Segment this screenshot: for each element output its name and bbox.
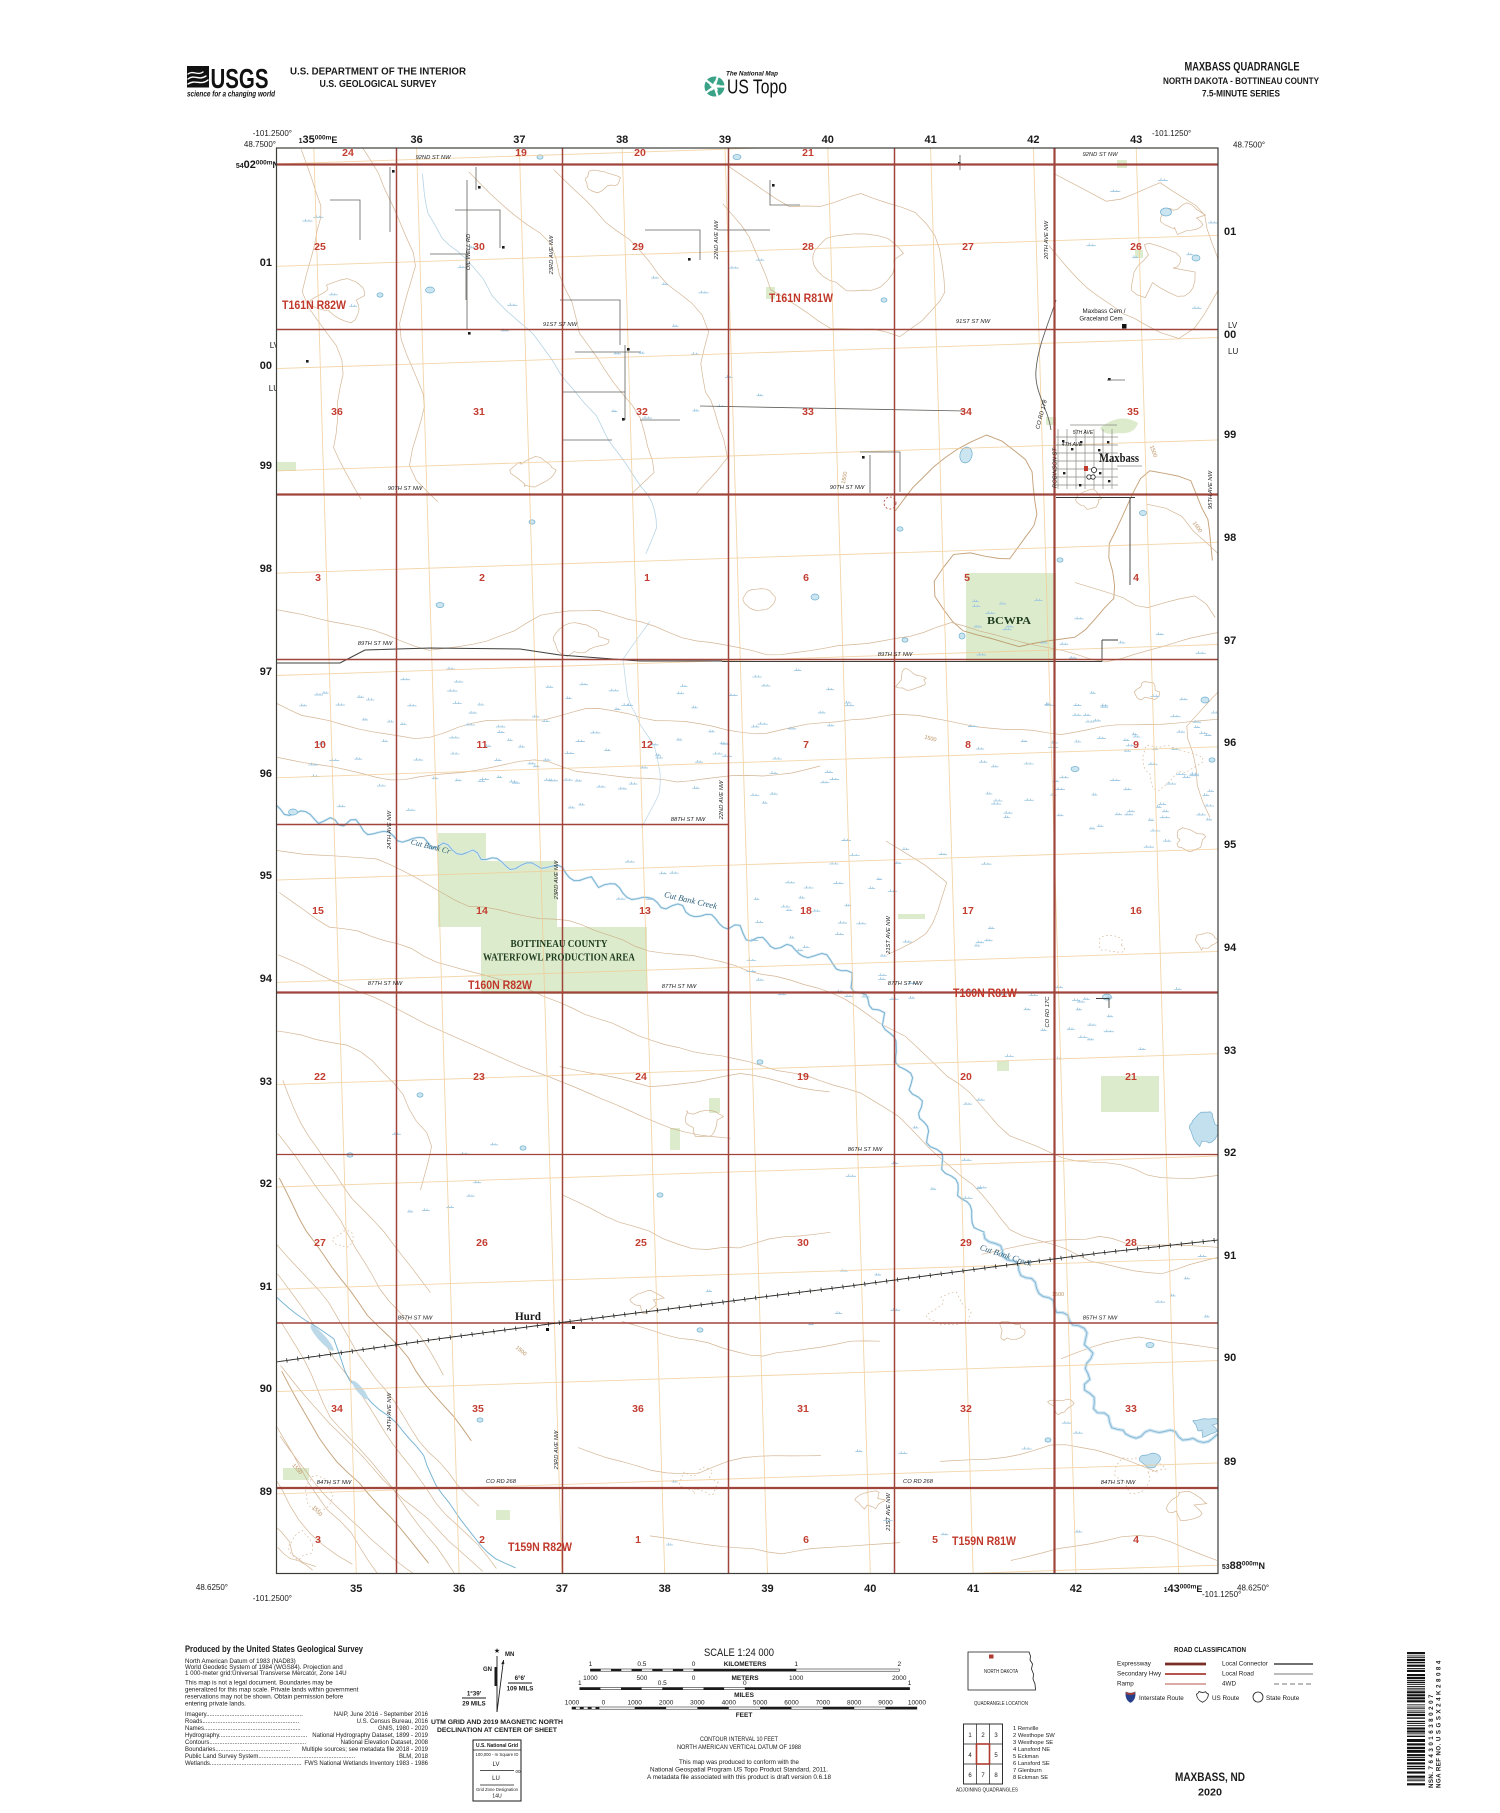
svg-text:40: 40 [822,134,834,146]
svg-text:48.7500°: 48.7500° [1233,141,1265,150]
svg-text:This map is not a legal docume: This map is not a legal document. Bounda… [185,1680,333,1687]
svg-text:4 Lansford NE: 4 Lansford NE [1013,1747,1050,1753]
svg-text:WATERFOWL PRODUCTION AREA: WATERFOWL PRODUCTION AREA [483,953,635,964]
svg-text:37: 37 [556,1583,568,1595]
svg-text:0: 0 [692,1675,696,1682]
svg-text:U.S. National Grid: U.S. National Grid [476,1743,518,1749]
svg-text:0: 0 [743,1680,747,1687]
svg-text:3000: 3000 [690,1700,705,1707]
svg-text:T160N R81W: T160N R81W [953,988,1017,1000]
svg-text:98: 98 [1224,532,1236,544]
svg-text:31: 31 [797,1403,809,1415]
svg-text:87TH ST NW: 87TH ST NW [368,981,403,987]
svg-text:40: 40 [864,1583,876,1595]
svg-text:27: 27 [962,241,974,253]
svg-text:38: 38 [616,134,628,146]
svg-text:500: 500 [636,1675,647,1682]
svg-text:GNIS, 1980 - 2020: GNIS, 1980 - 2020 [378,1726,429,1732]
svg-text:6°6': 6°6' [515,1675,526,1682]
svg-text:NORTH DAKOTA - BOTTINEAU COUNT: NORTH DAKOTA - BOTTINEAU COUNTY [1163,76,1319,86]
svg-text:95: 95 [1224,839,1236,851]
svg-text:15: 15 [312,905,324,917]
svg-text:NGA REF NO. U S G S X 2 4 K 2: NGA REF NO. U S G S X 2 4 K 2 8 0 8 4 [1436,1660,1443,1788]
svg-text:1°39': 1°39' [467,1691,482,1698]
svg-text:22ND AVE NW: 22ND AVE NW [719,780,725,820]
svg-text:19: 19 [797,1071,809,1083]
svg-text:41: 41 [924,134,936,146]
svg-text:Local Connector: Local Connector [1222,1661,1268,1668]
svg-text:34: 34 [960,406,972,418]
svg-text:48.7500°: 48.7500° [244,140,276,149]
svg-text:100,000 - m Square ID: 100,000 - m Square ID [476,1752,519,1758]
svg-text:6 Lansford SE: 6 Lansford SE [1013,1761,1050,1767]
svg-text:84TH ST NW: 84TH ST NW [317,1480,352,1486]
svg-text:22: 22 [314,1071,326,1083]
svg-text:87TH ST NW: 87TH ST NW [888,981,923,987]
svg-text:5: 5 [932,1534,938,1546]
svg-text:91ST ST NW: 91ST ST NW [543,322,578,328]
svg-text:ROBINSON ST: ROBINSON ST [1053,448,1059,488]
svg-text:34: 34 [331,1403,343,1415]
svg-text:99: 99 [260,460,272,472]
svg-text:3 Westhope SE: 3 Westhope SE [1013,1740,1053,1746]
svg-text:17: 17 [962,905,974,917]
svg-text:32: 32 [960,1403,972,1415]
svg-text:Public Land Survey System.....: Public Land Survey System...............… [185,1754,355,1760]
svg-text:98: 98 [260,563,272,575]
svg-text:91ST ST NW: 91ST ST NW [956,319,991,325]
svg-text:DECLINATION AT CENTER OF SHEET: DECLINATION AT CENTER OF SHEET [437,1727,557,1734]
svg-text:24: 24 [342,147,354,159]
svg-text:92ND ST NW: 92ND ST NW [1082,152,1118,158]
svg-text:33: 33 [1125,1403,1137,1415]
svg-text:3: 3 [315,572,321,584]
svg-text:18: 18 [800,905,812,917]
svg-text:2 Westhope SW: 2 Westhope SW [1013,1733,1055,1739]
svg-text:30: 30 [473,241,485,253]
svg-text:Multiple sources; see metadata: Multiple sources; see metadata file 2018… [302,1747,429,1753]
svg-text:BLM, 2018: BLM, 2018 [399,1754,429,1760]
svg-text:10000: 10000 [908,1700,926,1707]
svg-text:21ST AVE NW: 21ST AVE NW [886,916,892,955]
svg-text:87TH ST NW: 87TH ST NW [662,984,697,990]
svg-text:00: 00 [515,1769,521,1774]
svg-text:GN: GN [483,1667,492,1673]
svg-text:FEET: FEET [736,1712,753,1719]
svg-text:8 Eckman SE: 8 Eckman SE [1013,1775,1048,1781]
svg-text:41: 41 [967,1583,979,1595]
svg-text:2020: 2020 [1198,1788,1222,1799]
svg-text:SCALE 1:24 000: SCALE 1:24 000 [704,1647,774,1659]
svg-text:generalized for this map scale: generalized for this map scale. Private … [185,1687,359,1694]
svg-text:T160N R82W: T160N R82W [468,980,532,992]
svg-text:84TH ST NW: 84TH ST NW [1101,1480,1136,1486]
svg-text:8: 8 [965,739,971,751]
svg-text:89: 89 [260,1486,272,1498]
svg-text:95: 95 [260,870,272,882]
svg-text:36: 36 [331,406,343,418]
svg-text:T161N R81W: T161N R81W [769,293,833,305]
svg-text:10: 10 [314,739,326,751]
svg-text:23RD AVE NW: 23RD AVE NW [554,860,560,900]
svg-text:BOTTINEAU COUNTY: BOTTINEAU COUNTY [511,939,608,950]
svg-text:Expressway: Expressway [1117,1661,1152,1668]
svg-text:Graceland Cem: Graceland Cem [1079,316,1122,323]
svg-text:-101.1250°: -101.1250° [1152,129,1191,138]
svg-text:88TH ST NW: 88TH ST NW [671,817,706,823]
svg-text:-101.2500°: -101.2500° [253,129,292,138]
svg-text:KILOMETERS: KILOMETERS [724,1661,767,1668]
svg-text:24TH AVE NW: 24TH AVE NW [387,1392,393,1432]
svg-text:1: 1 [635,1534,641,1546]
svg-text:MAXBASS QUADRANGLE: MAXBASS QUADRANGLE [1185,62,1300,74]
svg-text:2: 2 [897,1661,901,1668]
svg-text:Produced by the United States: Produced by the United States Geological… [185,1644,363,1654]
svg-text:LU: LU [1228,347,1238,356]
svg-text:14: 14 [476,905,488,917]
svg-text:ROAD CLASSIFICATION: ROAD CLASSIFICATION [1174,1645,1246,1654]
svg-text:11: 11 [476,739,487,751]
svg-text:85TH ST NW: 85TH ST NW [1083,1316,1118,1322]
svg-text:43: 43 [1130,134,1142,146]
svg-text:6: 6 [803,572,809,584]
svg-text:8000: 8000 [847,1700,862,1707]
svg-text:2000: 2000 [659,1700,674,1707]
svg-text:4WD: 4WD [1222,1681,1236,1688]
svg-text:36: 36 [410,134,422,146]
svg-text:48.6250°: 48.6250° [196,1583,228,1592]
svg-text:28: 28 [1125,1237,1137,1249]
svg-text:7 Glenburn: 7 Glenburn [1013,1768,1042,1774]
svg-text:1000: 1000 [565,1700,580,1707]
svg-text:Wetlands......................: Wetlands................................… [185,1761,307,1767]
svg-text:MILES: MILES [734,1692,755,1699]
svg-text:32: 32 [636,406,648,418]
svg-text:7: 7 [803,739,809,751]
svg-text:35: 35 [472,1403,484,1415]
svg-text:CO RD 268: CO RD 268 [486,1479,517,1485]
svg-text:NSN. 7 6 4 3 0 1 6 3 8 0 2 0: NSN. 7 6 4 3 0 1 6 3 8 0 2 0 7 [1428,1694,1435,1788]
svg-text:12: 12 [641,739,653,751]
svg-text:2: 2 [479,1534,485,1546]
svg-text:36: 36 [453,1583,465,1595]
svg-text:4: 4 [1133,572,1139,584]
svg-text:QUADRANGLE LOCATION: QUADRANGLE LOCATION [974,1701,1028,1707]
svg-text:27: 27 [314,1237,326,1249]
svg-text:6: 6 [803,1534,809,1546]
svg-text:21: 21 [802,147,814,159]
svg-text:Imagery.......................: Imagery.................................… [185,1712,303,1718]
svg-text:21: 21 [1125,1071,1137,1083]
svg-text:35: 35 [1127,406,1139,418]
svg-text:25: 25 [635,1237,647,1249]
svg-text:1: 1 [644,572,650,584]
svg-text:01: 01 [1224,226,1236,238]
svg-text:21ST AVE NW: 21ST AVE NW [886,1493,892,1532]
svg-text:31: 31 [473,406,485,418]
svg-text:85TH ST NW: 85TH ST NW [398,1316,433,1322]
svg-text:Contours......................: Contours................................… [185,1740,306,1746]
svg-text:90: 90 [1224,1352,1236,1364]
svg-text:FWS National Wetlands Inventor: FWS National Wetlands Inventory 1983 - 1… [304,1761,428,1767]
svg-text:CO RD 268: CO RD 268 [903,1479,934,1485]
svg-text:MAXBASS, ND: MAXBASS, ND [1175,1770,1245,1784]
svg-text:reservations may not be shown.: reservations may not be shown. Obtain pe… [185,1694,344,1701]
svg-text:Names.........................: Names...................................… [185,1726,301,1732]
svg-text:23RD AVE NW: 23RD AVE NW [554,1430,560,1470]
svg-text:6000: 6000 [784,1700,799,1707]
svg-text:48.6250°: 48.6250° [1237,1584,1269,1593]
svg-text:2: 2 [479,572,485,584]
svg-text:OIL WELL RD: OIL WELL RD [466,234,472,271]
svg-text:92: 92 [1224,1147,1236,1159]
svg-text:20: 20 [634,147,646,159]
svg-text:42: 42 [1070,1583,1082,1595]
svg-text:90: 90 [260,1383,272,1395]
svg-text:A metadata file associated wit: A metadata file associated with this pro… [647,1774,832,1781]
svg-text:9000: 9000 [878,1700,893,1707]
svg-text:ADJOINING QUADRANGLES: ADJOINING QUADRANGLES [956,1788,1018,1794]
svg-text:14U: 14U [492,1794,502,1800]
svg-text:NORTH AMERICAN VERTICAL DATUM: NORTH AMERICAN VERTICAL DATUM OF 1988 [677,1744,801,1751]
svg-text:3: 3 [315,1534,321,1546]
svg-text:97: 97 [260,666,272,678]
svg-text:U.S. DEPARTMENT OF THE INTERIO: U.S. DEPARTMENT OF THE INTERIOR [290,66,466,78]
svg-text:entering private lands.: entering private lands. [185,1701,246,1708]
svg-text:13: 13 [639,905,651,917]
svg-text:US Topo: US Topo [727,77,787,99]
svg-text:95TH AVE NW: 95TH AVE NW [1208,470,1214,509]
svg-text:93: 93 [260,1076,272,1088]
svg-text:MN: MN [505,1652,514,1658]
svg-text:23: 23 [473,1071,485,1083]
svg-text:97: 97 [1224,635,1236,647]
svg-text:5: 5 [964,572,970,584]
svg-text:U.S. Census Bureau,: U.S. Census Bureau, 2016 [357,1719,429,1725]
svg-text:96: 96 [260,768,272,780]
svg-text:24: 24 [635,1071,647,1083]
svg-text:00: 00 [260,360,272,372]
svg-text:0.5: 0.5 [658,1680,667,1687]
svg-text:CONTOUR INTERVAL 10 FEET: CONTOUR INTERVAL 10 FEET [700,1736,778,1743]
svg-text:42: 42 [1027,134,1039,146]
svg-text:BCWPA: BCWPA [987,616,1032,627]
svg-text:0: 0 [602,1700,606,1707]
svg-text:91: 91 [1224,1250,1236,1262]
svg-text:23RD AVE NW: 23RD AVE NW [549,235,555,275]
svg-text:89TH ST NW: 89TH ST NW [358,641,393,647]
svg-text:This map was produced to confo: This map was produced to conform with th… [679,1759,800,1766]
svg-text:0.5: 0.5 [637,1661,646,1668]
svg-text:9: 9 [1133,739,1139,751]
svg-text:86TH ST NW: 86TH ST NW [848,1147,883,1153]
svg-text:39: 39 [719,134,731,146]
svg-text:Hurd: Hurd [515,1309,541,1323]
svg-text:0: 0 [692,1661,696,1668]
svg-text:Maxbass Cem /: Maxbass Cem / [1083,308,1126,315]
svg-text:-101.1250°: -101.1250° [1202,1590,1241,1599]
svg-text:4: 4 [1133,1534,1139,1546]
svg-text:science for a changing world: science for a changing world [187,90,276,99]
svg-text:19: 19 [515,147,527,159]
svg-text:24TH AVE NW: 24TH AVE NW [387,810,393,850]
svg-text:NORTH DAKOTA: NORTH DAKOTA [984,1669,1019,1675]
svg-text:5TH AVE: 5TH AVE [1073,430,1094,436]
svg-text:93: 93 [1224,1045,1236,1057]
svg-text:NAIP, June 2016 - September 20: NAIP, June 2016 - September 2016 [334,1712,429,1718]
svg-text:7.5-MINUTE SERIES: 7.5-MINUTE SERIES [1202,89,1280,99]
svg-text:89: 89 [1224,1456,1236,1468]
svg-text:LU: LU [492,1776,500,1782]
svg-text:90TH ST NW: 90TH ST NW [388,486,423,492]
svg-text:Interstate Route: Interstate Route [1139,1695,1184,1702]
svg-text:99: 99 [1224,429,1236,441]
svg-text:5 Eckman: 5 Eckman [1013,1754,1039,1760]
svg-text:39: 39 [761,1583,773,1595]
svg-text:30: 30 [797,1237,809,1249]
svg-text:National Hydrography Dataset,: National Hydrography Dataset, 1899 - 201… [312,1733,428,1739]
svg-text:1: 1 [908,1680,912,1687]
svg-text:T159N R82W: T159N R82W [508,1542,572,1554]
svg-text:LV: LV [493,1762,500,1768]
svg-text:20TH AVE NW: 20TH AVE NW [1044,220,1050,260]
svg-text:25: 25 [314,241,326,253]
svg-text:Local Road: Local Road [1222,1671,1254,1678]
svg-text:1 Renville: 1 Renville [1013,1726,1038,1732]
svg-text:Maxbass: Maxbass [1099,450,1139,465]
svg-text:1000: 1000 [583,1675,598,1682]
svg-text:Secondary Hwy: Secondary Hwy [1117,1671,1162,1678]
svg-text:91: 91 [260,1281,272,1293]
svg-text:1: 1 [578,1680,582,1687]
svg-text:29 MILS: 29 MILS [462,1701,485,1708]
svg-text:20: 20 [960,1071,972,1083]
svg-text:38: 38 [659,1583,671,1595]
svg-text:Ramp: Ramp [1117,1681,1134,1688]
svg-text:16: 16 [1130,905,1142,917]
svg-text:92ND ST NW: 92ND ST NW [415,155,451,161]
svg-text:4TH AVE: 4TH AVE [1062,442,1083,448]
svg-text:★: ★ [494,1647,500,1655]
svg-text:National Elevation Dataset, 20: National Elevation Dataset, 2008 [341,1740,429,1746]
svg-text:89TH ST NW: 89TH ST NW [878,652,913,658]
svg-text:US Route: US Route [1212,1695,1240,1702]
svg-text:Grid Zone Designation: Grid Zone Designation [476,1787,518,1793]
svg-text:29: 29 [960,1237,972,1249]
svg-text:2000: 2000 [892,1675,907,1682]
svg-text:33: 33 [802,406,814,418]
svg-text:T161N R82W: T161N R82W [282,300,346,312]
svg-text:Roads.........................: Roads...................................… [185,1719,299,1725]
svg-text:92: 92 [260,1178,272,1190]
svg-text:94: 94 [1224,942,1237,954]
svg-text:26: 26 [476,1237,488,1249]
svg-text:T159N R81W: T159N R81W [952,1536,1016,1548]
svg-text:CO RD 17C: CO RD 17C [1045,996,1051,1028]
svg-text:UTM GRID AND 2019 MAGNETIC NOR: UTM GRID AND 2019 MAGNETIC NORTH [431,1719,563,1726]
svg-text:4000: 4000 [722,1700,737,1707]
svg-text:26: 26 [1130,241,1142,253]
svg-text:U.S. GEOLOGICAL SURVEY: U.S. GEOLOGICAL SURVEY [320,78,437,90]
svg-text:National Geospatial Program US: National Geospatial Program US Topo Prod… [650,1767,828,1774]
svg-text:00: 00 [1224,329,1236,341]
svg-text:36: 36 [632,1403,644,1415]
svg-text:LV: LV [1228,321,1238,330]
svg-text:96: 96 [1224,737,1236,749]
svg-text:22ND AVE NW: 22ND AVE NW [714,220,720,260]
svg-text:1000: 1000 [627,1700,642,1707]
svg-text:Hydrography...................: Hydrography.............................… [185,1733,316,1739]
svg-text:94: 94 [260,973,273,985]
svg-text:1: 1 [794,1661,798,1668]
svg-text:90TH ST NW: 90TH ST NW [830,485,865,491]
svg-text:28: 28 [802,241,814,253]
svg-text:01: 01 [260,257,272,269]
svg-text:35: 35 [350,1583,362,1595]
svg-text:5000: 5000 [753,1700,768,1707]
svg-text:29: 29 [632,241,644,253]
svg-text:37: 37 [513,134,525,146]
svg-text:State Route: State Route [1266,1695,1300,1702]
svg-text:7000: 7000 [816,1700,831,1707]
svg-text:1 000-meter grid:Universal Tra: 1 000-meter grid:Universal Transverse Me… [185,1670,347,1677]
svg-text:109 MILS: 109 MILS [507,1686,534,1693]
svg-text:1: 1 [589,1661,593,1668]
svg-text:1000: 1000 [789,1675,804,1682]
svg-text:-101.2500°: -101.2500° [253,1594,292,1603]
